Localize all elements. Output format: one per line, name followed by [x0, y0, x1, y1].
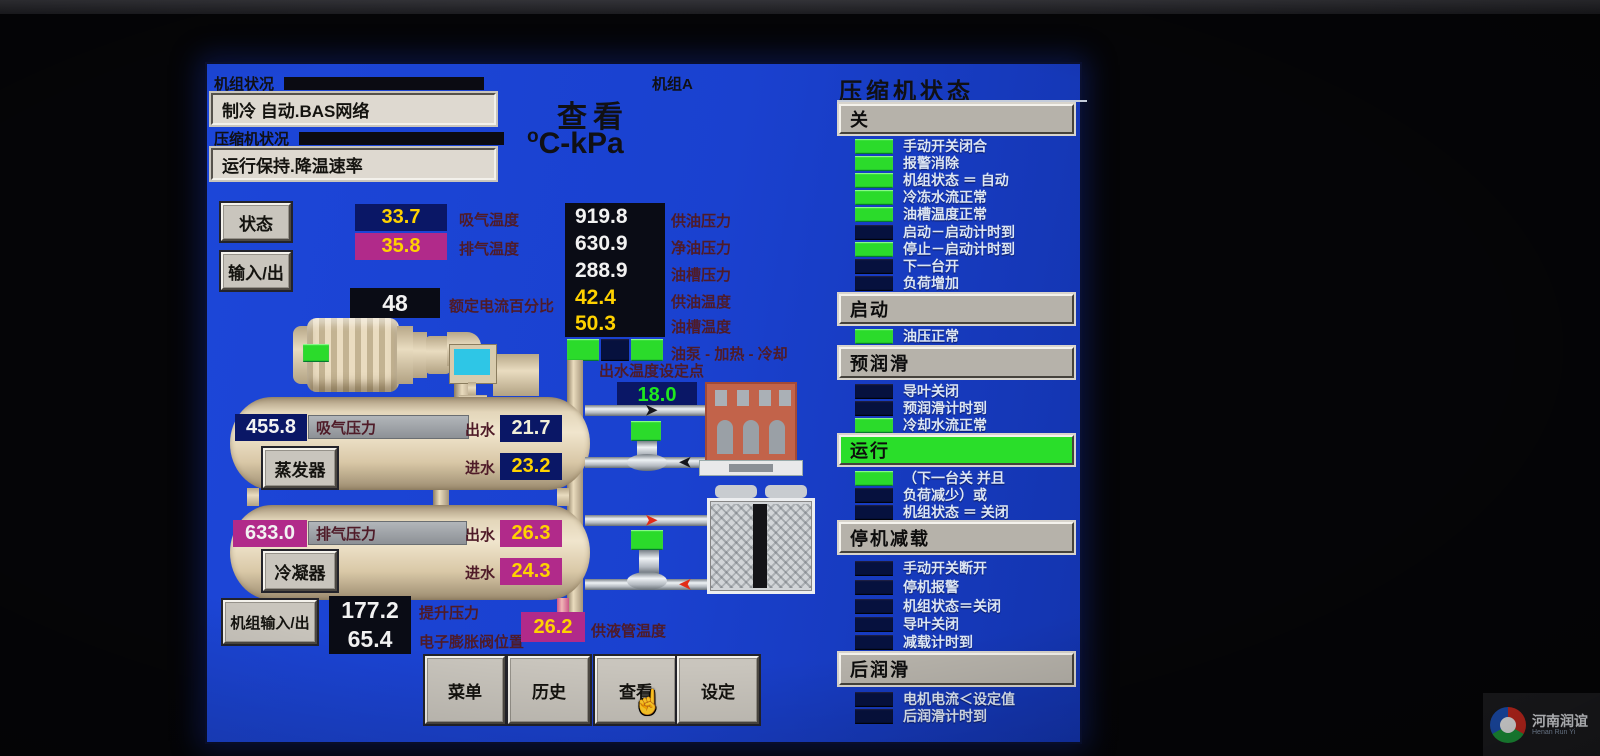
compressor-ring	[413, 332, 427, 378]
status-indicator	[855, 156, 893, 171]
oil-heater-indicator	[601, 339, 629, 361]
liquid-line-temp-label: 供液管温度	[591, 620, 666, 641]
status-label: 减载计时到	[903, 632, 973, 652]
status-label: 油压正常	[903, 326, 959, 346]
discharge-temp-value: 35.8	[355, 233, 447, 260]
photo-frame: 机组状况 机组A 制冷 自动.BAS网络 压缩机状况 运行保持.降温速率 查看 …	[0, 0, 1600, 756]
discharge-pressure-label: 排气压力	[316, 523, 376, 544]
status-indicator	[855, 401, 893, 416]
building-arch-window	[769, 420, 785, 454]
status-indicator	[855, 173, 893, 188]
building-window	[715, 390, 727, 406]
status-label: 手动开关断开	[903, 558, 987, 578]
building-base	[699, 460, 803, 476]
chilled-pump-body	[627, 454, 667, 471]
status-indicator	[855, 580, 893, 595]
status-indicator	[855, 561, 893, 576]
chilled-pump-indicator	[631, 421, 661, 441]
oil-cooling-indicator	[631, 339, 663, 361]
comp-status-readout: 运行保持.降温速率	[211, 148, 496, 180]
suction-pressure-bar: 吸气压力	[309, 416, 468, 438]
status-label: 后润滑计时到	[903, 706, 987, 726]
photo-top-glare	[0, 0, 1600, 14]
building-window	[737, 390, 749, 406]
cooling-tower-divider	[753, 504, 767, 588]
nav-menu-button[interactable]: 菜单	[425, 656, 505, 724]
status-indicator	[855, 692, 893, 707]
flow-arrow-left: ➤	[679, 455, 692, 470]
suction-pressure-value: 455.8	[235, 414, 307, 441]
status-indicator	[855, 242, 893, 257]
cooling-tower-fan	[765, 485, 807, 498]
status-row: 手动开关断开	[855, 558, 987, 578]
status-row: 机组状态 ＝ 关闭	[855, 502, 1009, 522]
watermark-logo-icon	[1490, 707, 1526, 743]
oil-sump-temp-label: 油槽温度	[671, 316, 731, 337]
discharge-pressure-value: 633.0	[233, 520, 307, 547]
status-indicator	[855, 190, 893, 205]
condenser-button[interactable]: 冷凝器	[263, 551, 337, 591]
building-window	[759, 390, 771, 406]
flow-arrow-left-red: ➤	[679, 577, 692, 592]
status-indicator	[855, 471, 893, 486]
state-box-postlube: 后润滑	[839, 653, 1074, 685]
status-label: 机组状态＝关闭	[903, 596, 1001, 616]
cond-leaving-value: 26.3	[500, 520, 562, 547]
hand-cursor-icon: ☝	[633, 688, 663, 717]
status-indicator	[855, 276, 893, 291]
evap-leaving-label: 出水	[465, 419, 495, 440]
status-indicator	[855, 384, 893, 399]
compressor-ring	[397, 326, 413, 384]
status-indicator	[855, 488, 893, 503]
status-label: 停机报警	[903, 577, 959, 597]
lift-eev-block: 177.2 65.4	[329, 596, 411, 654]
flow-arrow-right-red: ➤	[645, 513, 658, 528]
lift-pressure-label: 提升压力	[419, 602, 479, 623]
status-button[interactable]: 状态	[221, 203, 291, 241]
comp-status-label: 压缩机状况	[214, 128, 289, 149]
units-main: C-kPa	[539, 127, 624, 160]
watermark-cn: 河南润谊	[1532, 713, 1588, 730]
unit-status-readout: 制冷 自动.BAS网络	[211, 93, 496, 125]
oil-supply-temp-value: 42.4	[565, 284, 665, 311]
suction-pressure-label: 吸气压力	[316, 417, 376, 438]
unit-status-caption: 机组状况	[214, 73, 484, 94]
status-row: 冷却水流正常	[855, 415, 987, 435]
suction-temp-value: 33.7	[355, 204, 447, 231]
status-label: 油槽温度正常	[903, 204, 987, 224]
building-window	[779, 390, 791, 406]
evap-entering-value: 23.2	[500, 453, 562, 480]
nav-history-button[interactable]: 历史	[508, 656, 590, 724]
eev-position-label: 电子膨胀阀位置	[419, 631, 524, 652]
watermark-en: Henan Run Yi	[1532, 729, 1588, 736]
status-indicator	[855, 505, 893, 520]
oil-sump-temp-value: 50.3	[565, 311, 665, 337]
status-row: 减载计时到	[855, 632, 973, 652]
liquid-line-temp-value: 26.2	[521, 612, 585, 642]
discharge-pressure-bar: 排气压力	[309, 522, 466, 544]
monitor-stand	[468, 382, 476, 396]
watermark-text: 河南润谊 Henan Run Yi	[1532, 713, 1588, 737]
status-indicator	[855, 139, 893, 154]
cond-entering-label: 进水	[465, 562, 495, 583]
oil-supply-press-value: 919.8	[565, 203, 665, 230]
units-title: oC-kPa	[527, 126, 624, 161]
oil-sump-press-value: 288.9	[565, 257, 665, 284]
status-indicator	[855, 617, 893, 632]
status-label: 机组状态 ＝ 关闭	[903, 502, 1009, 522]
units-sup: o	[527, 126, 539, 147]
current-pct-label: 额定电流百分比	[449, 295, 554, 316]
status-indicator	[855, 635, 893, 650]
evaporator-leg	[247, 488, 259, 506]
oil-readouts-block: 919.8 630.9 288.9 42.4 50.3	[565, 203, 665, 337]
status-label: 冷却水流正常	[903, 415, 987, 435]
io-button[interactable]: 输入/出	[221, 252, 291, 290]
status-indicator	[855, 418, 893, 433]
status-row: 油压正常	[855, 326, 959, 346]
cooling-tower	[707, 498, 815, 594]
discharge-temp-label: 排气温度	[459, 238, 519, 259]
setpoint-label: 出水温度设定点	[599, 360, 704, 381]
state-box-off: 关	[839, 104, 1074, 134]
status-indicator	[855, 709, 893, 724]
watermark: 河南润谊 Henan Run Yi	[1483, 693, 1600, 756]
status-label: 负荷增加	[903, 273, 959, 293]
cond-entering-value: 24.3	[500, 558, 562, 585]
cond-valve-body	[639, 550, 659, 574]
status-row: 负荷增加	[855, 273, 959, 293]
status-row: 导叶关闭	[855, 614, 959, 634]
oil-net-press-value: 630.9	[565, 230, 665, 257]
evap-leaving-value: 21.7	[500, 415, 562, 442]
state-box-shutdown-unload: 停机减载	[839, 522, 1074, 553]
eev-position-value: 65.4	[329, 625, 411, 654]
building	[705, 382, 797, 464]
unit-name-label: 机组A	[652, 73, 693, 94]
status-row: 后润滑计时到	[855, 706, 987, 726]
cond-pump-body	[627, 572, 667, 590]
current-pct-value: 48	[350, 288, 440, 318]
oil-net-press-label: 净油压力	[671, 237, 731, 258]
evaporator-button[interactable]: 蒸发器	[263, 448, 337, 488]
evaporator-leg	[557, 488, 569, 506]
unit-status-label: 机组状况	[214, 73, 274, 94]
lift-pressure-value: 177.2	[329, 596, 411, 625]
status-indicator	[855, 599, 893, 614]
building-base-vent	[729, 464, 773, 472]
label-shadow-strip	[284, 77, 484, 90]
comp-status-caption: 压缩机状况	[214, 128, 504, 149]
flow-arrow-right: ➤	[645, 403, 658, 418]
status-row: 油槽温度正常	[855, 204, 987, 224]
status-label: 导叶关闭	[903, 614, 959, 634]
status-indicator	[855, 259, 893, 274]
control-monitor	[449, 344, 497, 384]
unit-io-button[interactable]: 机组输入/出	[223, 600, 317, 644]
building-arch-window	[743, 420, 759, 454]
status-row: 机组状态＝关闭	[855, 596, 1001, 616]
building-arch-window	[717, 420, 733, 454]
compressor-run-indicator	[303, 344, 329, 362]
nav-setting-button[interactable]: 设定	[677, 656, 759, 724]
oil-supply-temp-label: 供油温度	[671, 291, 731, 312]
oil-sump-press-label: 油槽压力	[671, 264, 731, 285]
status-indicator	[855, 329, 893, 344]
monitor-screen	[454, 349, 490, 375]
status-indicator	[855, 207, 893, 222]
hmi-screen: 机组状况 机组A 制冷 自动.BAS网络 压缩机状况 运行保持.降温速率 查看 …	[205, 62, 1082, 744]
title-underline	[837, 100, 1087, 102]
oil-supply-press-label: 供油压力	[671, 210, 731, 231]
status-row: 停机报警	[855, 577, 959, 597]
status-indicator	[855, 225, 893, 240]
oil-pump-indicator	[567, 339, 599, 361]
state-box-prelube: 预润滑	[839, 347, 1074, 378]
panel-cabinet	[493, 354, 539, 396]
evap-entering-label: 进水	[465, 457, 495, 478]
suction-temp-label: 吸气温度	[459, 209, 519, 230]
state-box-start: 启动	[839, 294, 1074, 324]
label-shadow-strip	[299, 132, 504, 145]
cond-leaving-label: 出水	[465, 524, 495, 545]
state-box-run: 运行	[839, 435, 1074, 465]
cond-pump-indicator	[631, 530, 663, 550]
cooling-tower-fan	[715, 485, 757, 498]
